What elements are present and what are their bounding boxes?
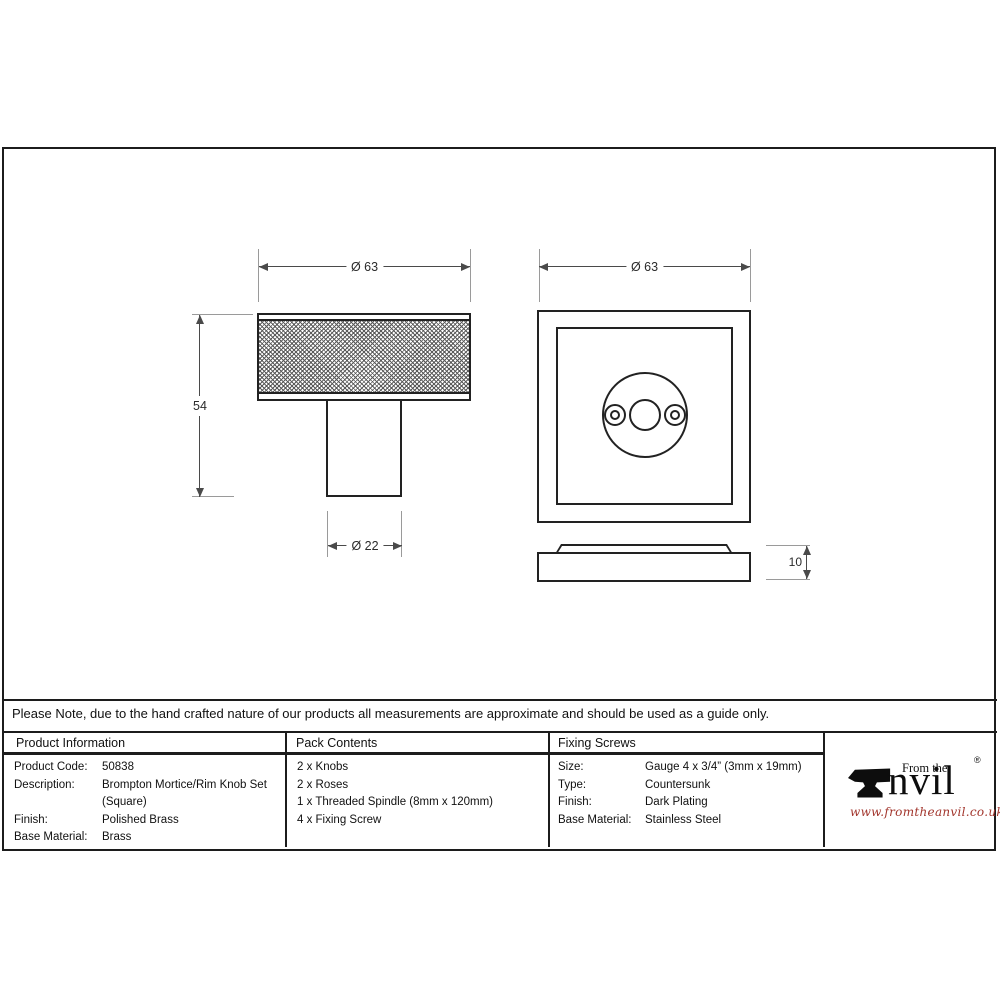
stem-diameter-dimension: Ø 22 <box>328 545 402 546</box>
note-row-top-rule <box>3 699 997 701</box>
witness-line <box>401 511 402 557</box>
product-information-cell: Product Code:50838 Description:Brompton … <box>14 759 282 847</box>
witness-line <box>766 579 810 580</box>
row-label: Size: <box>558 759 645 777</box>
logo-website-url: www.fromtheanvil.co.uk <box>850 805 1000 819</box>
row-value: Countersunk <box>645 777 823 795</box>
list-item: 2 x Knobs <box>297 759 542 777</box>
row-label: Base Material: <box>558 812 645 830</box>
header-bottom-rule <box>3 752 824 755</box>
table-row: Size:Gauge 4 x 3/4” (3mm x 19mm) <box>558 759 820 777</box>
fixing-screws-header: Fixing Screws <box>558 736 636 750</box>
row-label: Base Material: <box>14 829 102 847</box>
column-divider <box>548 733 550 847</box>
witness-line <box>327 511 328 557</box>
anvil-icon <box>848 763 892 803</box>
pack-contents-cell: 2 x Knobs 2 x Roses 1 x Threaded Spindle… <box>297 759 542 829</box>
column-divider <box>285 733 287 847</box>
fixing-screws-cell: Size:Gauge 4 x 3/4” (3mm x 19mm) Type:Co… <box>558 759 820 829</box>
pack-contents-header: Pack Contents <box>296 736 377 750</box>
table-row: Product Code:50838 <box>14 759 282 777</box>
rose-profile-base <box>537 552 751 582</box>
row-value: Gauge 4 x 3/4” (3mm x 19mm) <box>645 759 823 777</box>
row-value: Dark Plating <box>645 794 823 812</box>
table-row: Base Material:Stainless Steel <box>558 812 820 830</box>
product-information-header: Product Information <box>16 736 125 750</box>
rose-width-dimension: Ø 63 <box>539 266 750 267</box>
list-item: 2 x Roses <box>297 777 542 795</box>
row-label: Finish: <box>14 812 102 830</box>
row-value: 50838 <box>102 759 274 777</box>
rose-thickness-dimension <box>806 546 807 579</box>
knob-stem-outline <box>326 401 402 497</box>
measurement-disclaimer: Please Note, due to the hand crafted nat… <box>12 706 769 721</box>
list-item: 4 x Fixing Screw <box>297 812 542 830</box>
column-divider <box>823 733 825 847</box>
table-row: Finish:Polished Brass <box>14 812 282 830</box>
knob-head-outline <box>257 313 471 401</box>
list-item: 1 x Threaded Spindle (8mm x 120mm) <box>297 794 542 812</box>
rose-width-label: Ø 63 <box>626 260 663 274</box>
product-datasheet: Ø 63 54 Ø 22 Ø 63 <box>0 0 1000 1000</box>
right-screw-hole-inner <box>670 410 680 420</box>
knob-diameter-label: Ø 63 <box>346 260 383 274</box>
witness-line <box>470 249 471 302</box>
spindle-hole-circle <box>629 399 661 431</box>
table-row: Type:Countersunk <box>558 777 820 795</box>
table-row: Base Material:Brass <box>14 829 282 847</box>
witness-line <box>539 249 540 302</box>
row-value: Brompton Mortice/Rim Knob Set (Square) <box>102 777 274 812</box>
rose-thickness-label: 10 <box>784 555 802 569</box>
row-value: Stainless Steel <box>645 812 823 830</box>
table-row: Description:Brompton Mortice/Rim Knob Se… <box>14 777 282 812</box>
witness-line <box>750 249 751 302</box>
stem-diameter-label: Ø 22 <box>346 539 383 553</box>
knob-height-label: 54 <box>191 396 209 416</box>
registered-trademark-symbol: ® <box>974 755 981 765</box>
row-value: Polished Brass <box>102 812 274 830</box>
knob-height-dimension: 54 <box>199 315 200 497</box>
witness-line <box>258 249 259 302</box>
table-row: Finish:Dark Plating <box>558 794 820 812</box>
knurl-pattern <box>259 319 469 394</box>
left-screw-hole-inner <box>610 410 620 420</box>
from-the-anvil-logo: From the nvil ® www.fromtheanvil.co.uk <box>826 733 996 849</box>
knob-diameter-dimension: Ø 63 <box>259 266 470 267</box>
row-label: Type: <box>558 777 645 795</box>
row-label: Description: <box>14 777 102 795</box>
row-value: Brass <box>102 829 274 847</box>
row-label: Finish: <box>558 794 645 812</box>
row-label: Product Code: <box>14 759 102 777</box>
logo-wordmark: nvil <box>888 756 956 804</box>
